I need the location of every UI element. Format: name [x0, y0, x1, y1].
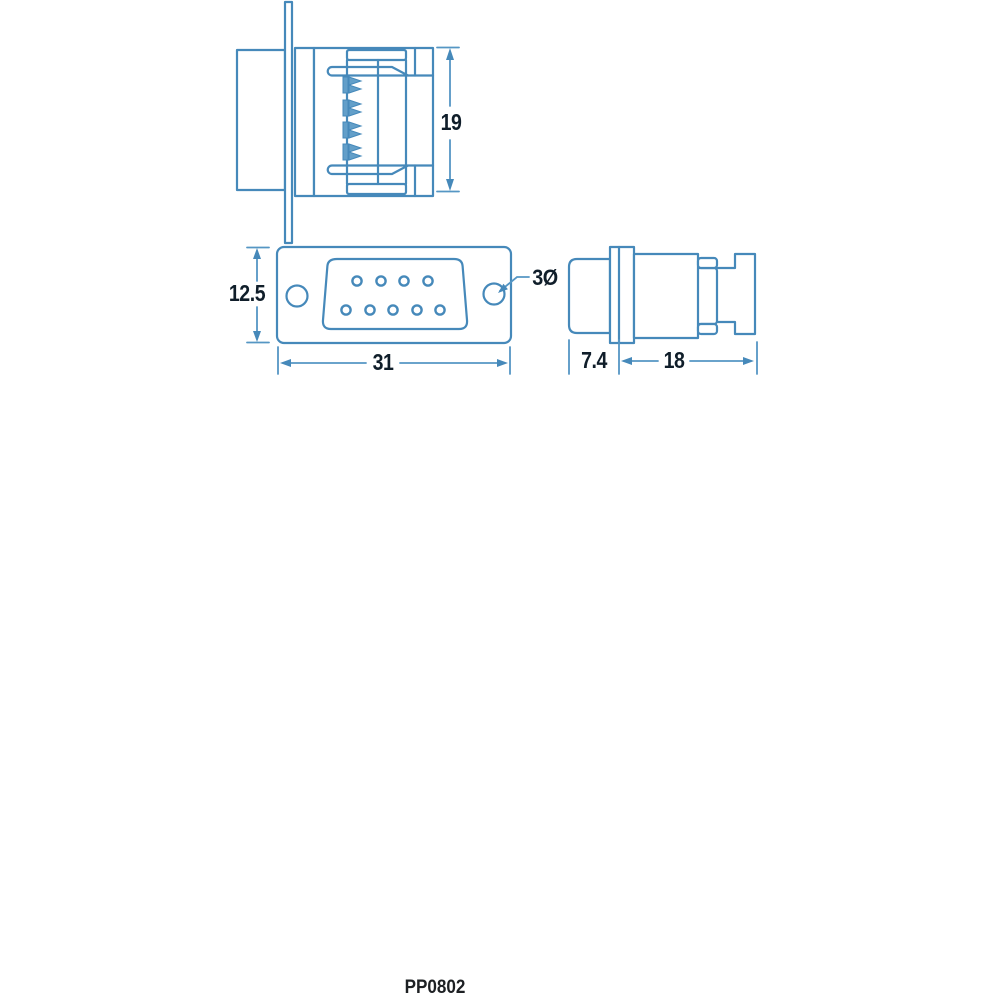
front-view: 12.5 31 3Ø: [229, 247, 558, 375]
front-shell-side: [569, 259, 610, 333]
bottom-rail-bracket: [347, 184, 406, 194]
panel-plate: [285, 2, 292, 243]
arrow-down-icon: [446, 179, 454, 191]
dimension-12-5: 12.5: [229, 248, 269, 343]
latch-tab-top: [698, 258, 717, 268]
pin-hole: [412, 305, 421, 314]
pin-hole: [376, 276, 385, 285]
lower-guide-rail: [328, 166, 408, 175]
dim-18-label: 18: [664, 348, 685, 374]
mounting-hole-right: [484, 284, 505, 305]
d-sub-shell-outline: [323, 259, 467, 329]
part-number-label: PP0802: [405, 976, 466, 997]
pin-hole: [365, 305, 374, 314]
dim-19-label: 19: [441, 110, 462, 136]
flange-side: [610, 247, 634, 343]
dimension-19: 19: [437, 48, 462, 192]
dim-12-5-label: 12.5: [229, 281, 266, 307]
arrow-left-icon: [621, 357, 632, 365]
pin-hole: [352, 276, 361, 285]
top-section-view: 19: [237, 2, 462, 243]
pin-hole: [399, 276, 408, 285]
dimension-7-4-and-18: 7.4 18: [569, 340, 757, 374]
body-side: [634, 254, 698, 338]
pin-hole: [341, 305, 350, 314]
connector-dimension-drawing: 19: [0, 0, 1000, 1000]
dim-31-label: 31: [373, 350, 394, 376]
cable-clamp-profile: [717, 254, 755, 334]
arrow-left-icon: [280, 359, 291, 367]
technical-drawing-page: 19: [0, 0, 1000, 1000]
dimension-31: 31: [278, 347, 510, 375]
arrow-right-icon: [497, 359, 508, 367]
dim-7-4-label: 7.4: [581, 348, 607, 374]
backshell-outline: [237, 50, 285, 190]
mounting-hole-left: [287, 286, 308, 307]
dim-3dia-label: 3Ø: [532, 266, 558, 290]
pin-hole: [423, 276, 432, 285]
arrow-up-icon: [253, 248, 261, 259]
upper-guide-rail: [328, 67, 408, 76]
top-rail-bracket: [347, 50, 406, 60]
pin-hole: [435, 305, 444, 314]
mounting-flange: [295, 48, 314, 196]
arrow-up-icon: [446, 48, 454, 60]
side-view: 7.4 18: [569, 247, 757, 374]
arrow-down-icon: [253, 331, 261, 342]
latch-tab-bottom: [698, 324, 717, 334]
pin-hole: [388, 305, 397, 314]
arrow-right-icon: [743, 357, 754, 365]
